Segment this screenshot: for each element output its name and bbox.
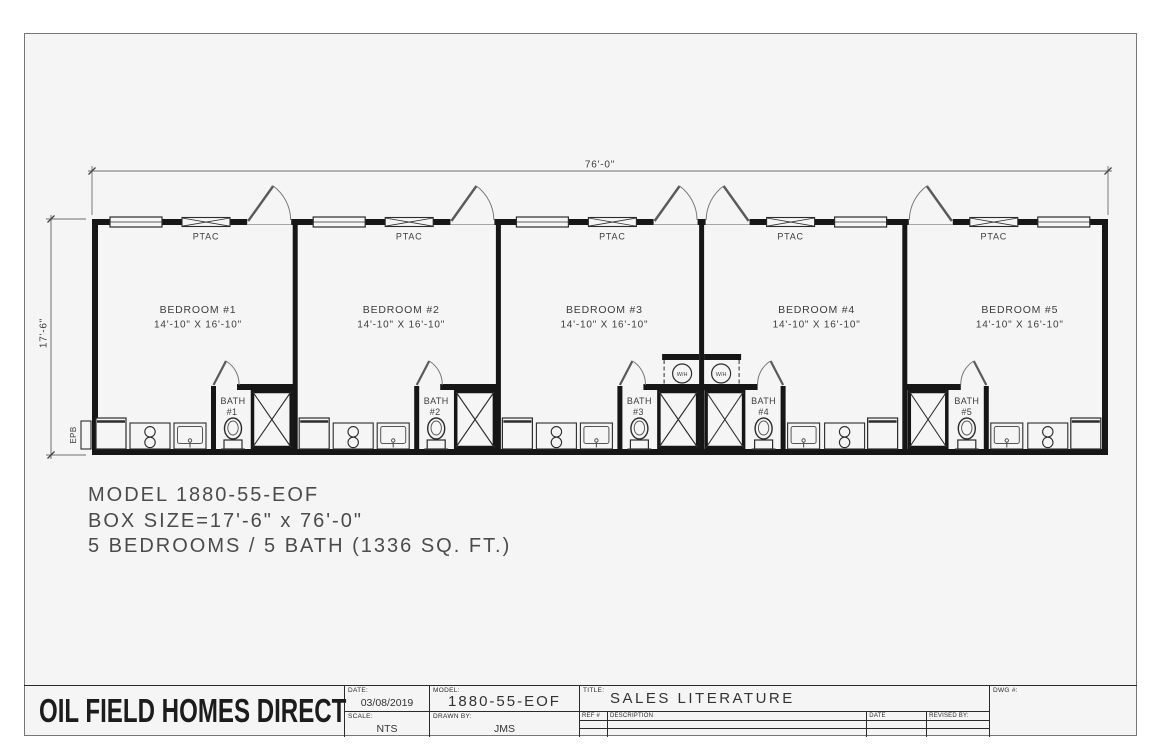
height-dimension-label: 17'-6" <box>39 318 50 348</box>
unit-3: PTACBEDROOM #314'-10" X 16'-10"BATH#3 <box>502 186 703 449</box>
epb-label: EPB <box>69 426 78 443</box>
bath-side-wall <box>617 386 622 449</box>
unit-divider-wall <box>293 224 298 450</box>
drawn-by-value: JMS <box>430 723 579 735</box>
bath-label: BATH <box>627 396 652 406</box>
company-cell: OIL FIELD HOMES DIRECT <box>24 686 345 737</box>
electrical-panel: EPB <box>69 421 91 449</box>
bath-top-wall <box>903 384 961 390</box>
title-value: SALES LITERATURE <box>610 690 795 707</box>
bedroom-label: BEDROOM #1 <box>160 304 237 316</box>
wh-closet-wall <box>704 354 741 360</box>
scale-label: SCALE: <box>348 713 373 720</box>
bath-top-wall <box>643 384 703 390</box>
bedroom-label: BEDROOM #4 <box>778 304 855 316</box>
scale-cell: SCALE: NTS <box>345 712 430 738</box>
date-label: DATE: <box>348 687 368 694</box>
exterior-wall-right <box>1102 219 1108 455</box>
rev-row-cell <box>608 729 867 737</box>
bath-side-wall <box>414 386 419 449</box>
bedroom-size-label: 14'-10" X 16'-10" <box>560 320 648 331</box>
unit-5: PTACBEDROOM #514'-10" X 16'-10"BATH#5 <box>903 186 1101 449</box>
bedroom-size-label: 14'-10" X 16'-10" <box>154 320 242 331</box>
date-value: 03/08/2019 <box>345 697 429 709</box>
bath-door-leaf <box>417 361 430 385</box>
toilet-tank <box>755 440 773 449</box>
unit-divider-wall <box>699 224 704 450</box>
unit-2: PTACBEDROOM #214'-10" X 16'-10"BATH#2 <box>299 186 500 449</box>
bedroom-size-label: 14'-10" X 16'-10" <box>976 320 1064 331</box>
water-heater-label: W/H <box>677 372 688 378</box>
bath-number-label: #1 <box>227 407 238 417</box>
plan-notes: MODEL 1880-55-EOF BOX SIZE=17'-6" x 76'-… <box>88 483 511 560</box>
ptac-label: PTAC <box>599 232 626 242</box>
bath-side-wall <box>984 386 989 449</box>
door-swing-icon <box>758 361 771 385</box>
bath-label: BATH <box>221 396 246 406</box>
note-model: MODEL 1880-55-EOF <box>88 483 511 509</box>
bath-top-wall <box>237 384 297 390</box>
revision-table: REF # DESCRIPTION DATE REVISED BY: <box>580 712 990 738</box>
bath-side-wall <box>211 386 216 449</box>
rev-header-description: DESCRIPTION <box>608 712 867 721</box>
width-dimension-label: 76'-0" <box>585 160 615 171</box>
model-cell: MODEL: 1880-55-EOF <box>430 686 580 712</box>
door-swing-icon <box>961 361 974 385</box>
bath-number-label: #5 <box>961 407 972 417</box>
scale-value: NTS <box>345 723 429 735</box>
unit-1: PTACBEDROOM #114'-10" X 16'-10"BATH#1 <box>96 186 297 449</box>
model-value: 1880-55-EOF <box>430 693 579 710</box>
door-swing-icon <box>429 361 442 385</box>
rev-row-cell <box>927 721 989 729</box>
bath-number-label: #2 <box>430 407 441 417</box>
bedroom-size-label: 14'-10" X 16'-10" <box>773 320 861 331</box>
bath-label: BATH <box>954 396 979 406</box>
ptac-label: PTAC <box>396 232 423 242</box>
rev-row-cell <box>608 721 867 729</box>
date-cell: DATE: 03/08/2019 <box>345 686 430 712</box>
drawing-sheet: 76'-0"17'-6"W/HW/HPTACBEDROOM #114'-10" … <box>0 0 1160 745</box>
toilet-tank <box>224 440 242 449</box>
company-name: OIL FIELD HOMES DIRECT <box>39 692 346 730</box>
title-label: TITLE: <box>583 687 604 694</box>
door-swing-icon <box>226 361 239 385</box>
title-cell: TITLE: SALES LITERATURE <box>580 686 990 712</box>
rev-row-cell <box>867 729 927 737</box>
bath-number-label: #3 <box>633 407 644 417</box>
dwg-number-label: DWG #: <box>993 687 1018 694</box>
bedroom-label: BEDROOM #3 <box>566 304 643 316</box>
unit-divider-wall <box>902 224 907 450</box>
ptac-label: PTAC <box>193 232 220 242</box>
dwg-number-cell: DWG #: <box>990 686 1137 737</box>
bath-door-leaf <box>771 361 784 385</box>
bath-top-wall <box>440 384 500 390</box>
bath-label: BATH <box>751 396 776 406</box>
drawn-by-cell: DRAWN BY: JMS <box>430 712 580 738</box>
bath-door-leaf <box>214 361 227 385</box>
bath-side-wall <box>781 386 786 449</box>
door-swing-icon <box>632 361 645 385</box>
bath-door-leaf <box>620 361 633 385</box>
unit-divider-wall <box>496 224 501 450</box>
floor-plan-drawing: 76'-0"17'-6"W/HW/HPTACBEDROOM #114'-10" … <box>0 0 1160 745</box>
epb-icon <box>81 421 91 449</box>
bedroom-label: BEDROOM #2 <box>363 304 440 316</box>
rev-header-date: DATE <box>867 712 927 721</box>
bedroom-label: BEDROOM #5 <box>981 304 1058 316</box>
water-heater-label: W/H <box>716 372 727 378</box>
rev-row-cell <box>580 729 608 737</box>
toilet-tank <box>958 440 976 449</box>
rev-header-revised-by: REVISED BY: <box>927 712 989 721</box>
bath-label: BATH <box>424 396 449 406</box>
ptac-label: PTAC <box>777 232 804 242</box>
note-bedrooms: 5 BEDROOMS / 5 BATH (1336 SQ. FT.) <box>88 534 511 560</box>
bath-top-wall <box>700 384 758 390</box>
toilet-tank <box>427 440 445 449</box>
building-walls <box>92 219 1108 455</box>
rev-header-ref: REF # <box>580 712 608 721</box>
unit-4: PTACBEDROOM #414'-10" X 16'-10"BATH#4 <box>700 186 898 449</box>
wh-closet-wall <box>662 354 699 360</box>
note-box-size: BOX SIZE=17'-6" x 76'-0" <box>88 509 511 535</box>
rev-row-cell <box>927 729 989 737</box>
rev-row-cell <box>580 721 608 729</box>
bath-number-label: #4 <box>758 407 769 417</box>
bedroom-size-label: 14'-10" X 16'-10" <box>357 320 445 331</box>
ptac-label: PTAC <box>981 232 1008 242</box>
toilet-tank <box>630 440 648 449</box>
bath-door-leaf <box>974 361 987 385</box>
drawn-by-label: DRAWN BY: <box>433 713 472 720</box>
title-block: OIL FIELD HOMES DIRECT DATE: 03/08/2019 … <box>24 685 1137 736</box>
rev-row-cell <box>867 721 927 729</box>
